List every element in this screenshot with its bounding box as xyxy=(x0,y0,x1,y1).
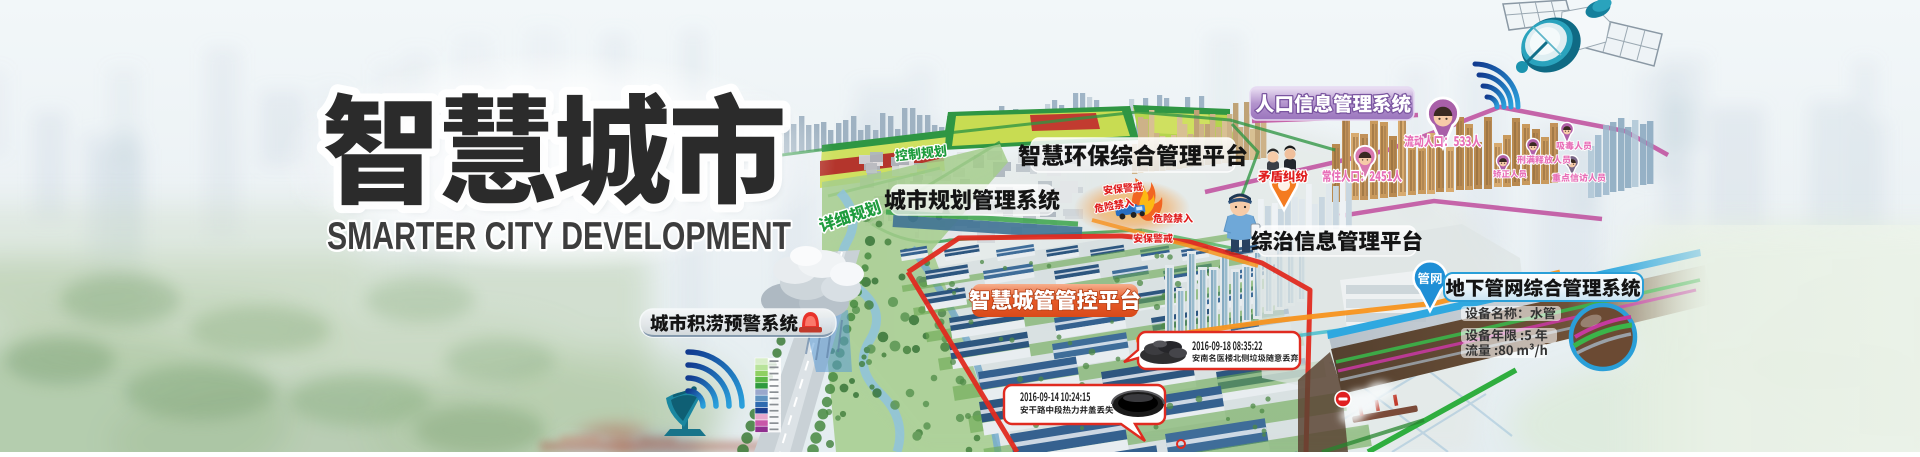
svg-text:SMARTER CITY DEVELOPMENT: SMARTER CITY DEVELOPMENT xyxy=(327,215,791,258)
